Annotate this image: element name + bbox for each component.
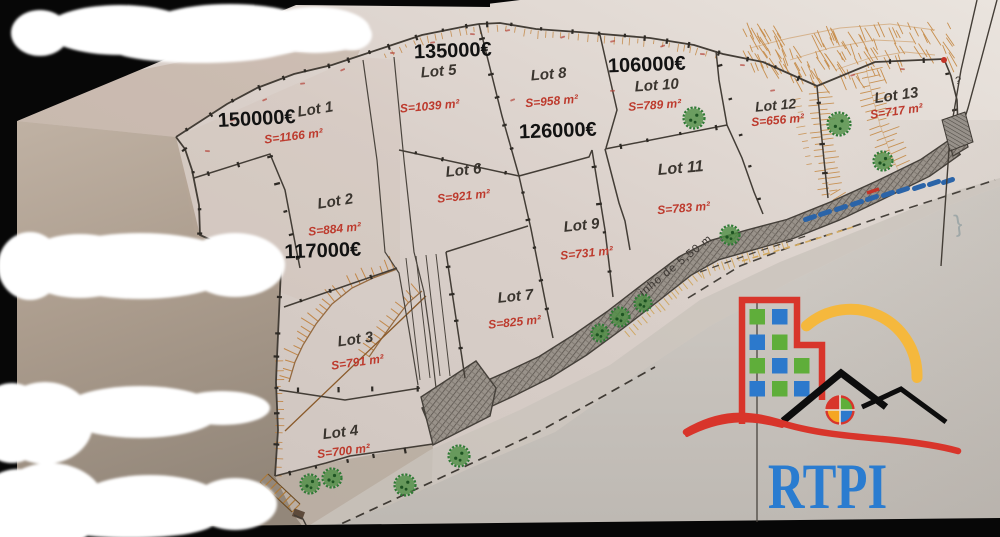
svg-text:106000€: 106000€ <box>607 53 686 78</box>
svg-text:Lot 5: Lot 5 <box>420 61 458 81</box>
svg-text:Lot 8: Lot 8 <box>530 64 568 84</box>
svg-text:126000€: 126000€ <box>518 119 597 144</box>
svg-text:150000€: 150000€ <box>217 106 296 132</box>
svg-text:135000€: 135000€ <box>413 39 492 64</box>
svg-text:117000€: 117000€ <box>284 239 361 264</box>
svg-text:?: ? <box>955 75 961 87</box>
svg-text:RTPI: RTPI <box>768 450 887 522</box>
svg-text:Lot 10: Lot 10 <box>634 75 680 95</box>
